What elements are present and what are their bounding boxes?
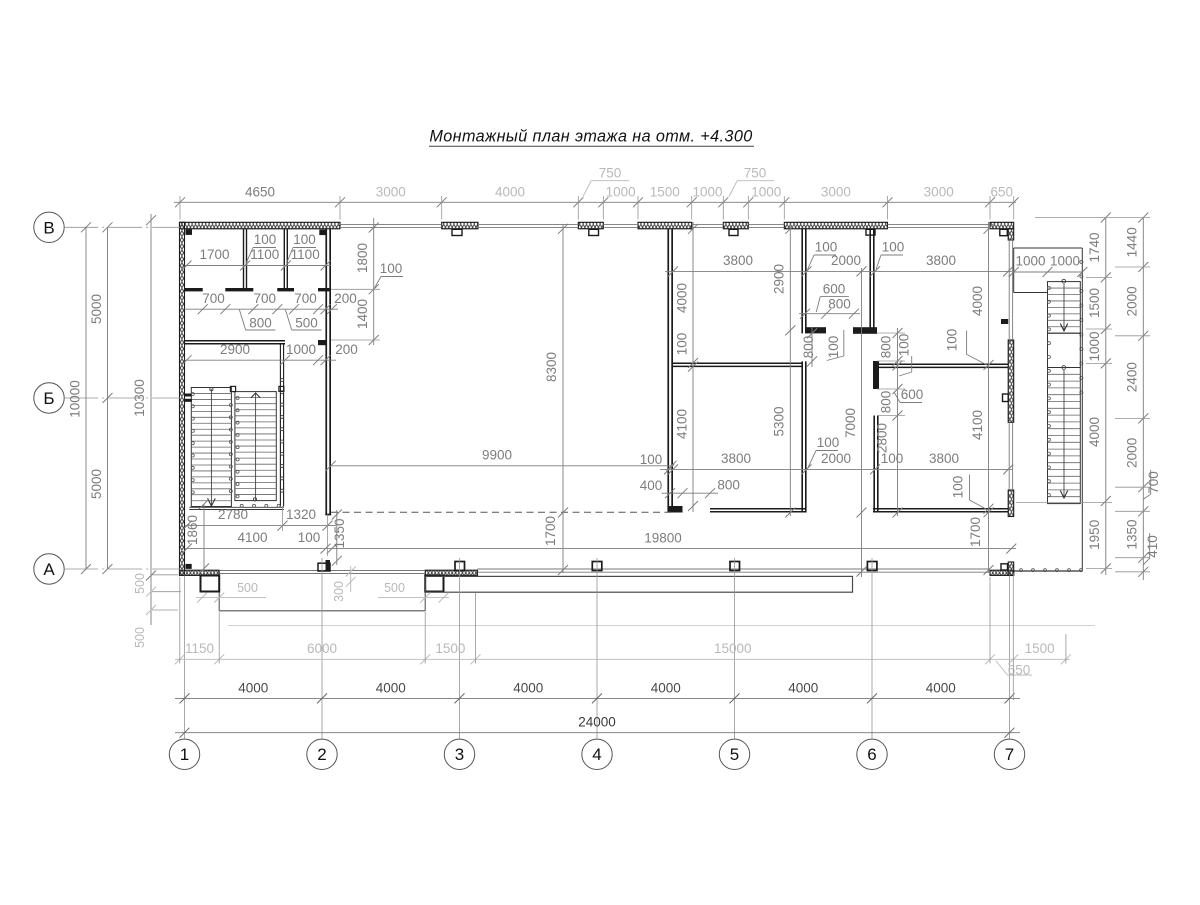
- svg-text:2000: 2000: [1125, 438, 1140, 468]
- svg-text:500: 500: [237, 581, 258, 595]
- svg-text:2: 2: [317, 745, 326, 764]
- svg-text:500: 500: [133, 627, 147, 648]
- svg-text:1700: 1700: [968, 517, 983, 547]
- svg-text:10000: 10000: [68, 380, 83, 418]
- svg-text:15000: 15000: [714, 641, 752, 656]
- svg-text:19800: 19800: [644, 531, 682, 546]
- svg-text:500: 500: [133, 573, 147, 594]
- svg-text:800: 800: [828, 297, 851, 312]
- svg-text:700: 700: [1146, 471, 1161, 494]
- svg-text:200: 200: [334, 291, 357, 306]
- svg-text:100: 100: [945, 329, 960, 352]
- svg-text:1500: 1500: [1087, 288, 1102, 318]
- svg-text:4000: 4000: [376, 681, 406, 696]
- svg-text:4000: 4000: [788, 681, 818, 696]
- svg-text:7: 7: [1005, 745, 1014, 764]
- svg-text:3000: 3000: [924, 184, 954, 199]
- svg-text:3800: 3800: [929, 451, 959, 466]
- svg-text:Б: Б: [43, 389, 54, 408]
- svg-text:800: 800: [249, 315, 272, 330]
- svg-text:5000: 5000: [89, 469, 104, 499]
- svg-text:1740: 1740: [1087, 232, 1102, 262]
- svg-text:300: 300: [332, 581, 346, 602]
- svg-text:1000: 1000: [606, 184, 636, 199]
- svg-text:5300: 5300: [772, 406, 787, 436]
- svg-text:5: 5: [730, 745, 739, 764]
- svg-text:750: 750: [599, 166, 622, 181]
- svg-text:1500: 1500: [435, 641, 465, 656]
- svg-text:3: 3: [455, 745, 464, 764]
- svg-text:4100: 4100: [237, 530, 267, 545]
- svg-text:4000: 4000: [238, 681, 268, 696]
- svg-text:1000: 1000: [1050, 254, 1080, 269]
- svg-text:1800: 1800: [355, 243, 370, 273]
- svg-text:4000: 4000: [513, 681, 543, 696]
- svg-text:500: 500: [295, 315, 318, 330]
- svg-text:1320: 1320: [286, 507, 316, 522]
- svg-text:500: 500: [384, 581, 405, 595]
- svg-text:1440: 1440: [1125, 227, 1140, 257]
- svg-text:1000: 1000: [751, 184, 781, 199]
- svg-text:2780: 2780: [218, 507, 248, 522]
- svg-text:2000: 2000: [1125, 286, 1140, 316]
- svg-text:1000: 1000: [1087, 331, 1102, 361]
- svg-text:3800: 3800: [721, 451, 751, 466]
- svg-text:100: 100: [897, 334, 912, 357]
- svg-text:100: 100: [380, 261, 403, 276]
- svg-text:24000: 24000: [578, 714, 616, 729]
- svg-text:800: 800: [801, 336, 816, 359]
- svg-text:9900: 9900: [482, 447, 512, 462]
- svg-text:4100: 4100: [970, 410, 985, 440]
- svg-text:2000: 2000: [821, 451, 851, 466]
- svg-text:410: 410: [1145, 535, 1160, 558]
- svg-text:4000: 4000: [970, 286, 985, 316]
- svg-text:2900: 2900: [220, 342, 250, 357]
- svg-text:1100: 1100: [291, 247, 320, 262]
- svg-text:1950: 1950: [1087, 520, 1102, 550]
- svg-text:1700: 1700: [543, 516, 558, 546]
- svg-text:1000: 1000: [286, 342, 316, 357]
- svg-text:100: 100: [675, 333, 690, 356]
- svg-text:100: 100: [254, 232, 277, 247]
- svg-text:100: 100: [951, 476, 966, 499]
- svg-text:2400: 2400: [1125, 362, 1140, 392]
- svg-text:7000: 7000: [843, 408, 858, 438]
- svg-text:4: 4: [592, 745, 601, 764]
- svg-text:Монтажный план этажа на отм. +: Монтажный план этажа на отм. +4.300: [429, 128, 752, 146]
- svg-text:1000: 1000: [1015, 254, 1045, 269]
- svg-text:100: 100: [640, 452, 663, 467]
- svg-text:3000: 3000: [821, 184, 851, 199]
- svg-text:1: 1: [180, 745, 189, 764]
- svg-text:100: 100: [293, 232, 316, 247]
- svg-text:6: 6: [867, 745, 876, 764]
- svg-text:100: 100: [882, 240, 905, 255]
- svg-text:800: 800: [879, 336, 894, 359]
- svg-text:4000: 4000: [926, 681, 956, 696]
- svg-text:2900: 2900: [772, 264, 787, 294]
- svg-text:700: 700: [202, 291, 225, 306]
- svg-text:4650: 4650: [245, 184, 275, 199]
- svg-text:100: 100: [815, 240, 838, 255]
- svg-text:4000: 4000: [495, 184, 525, 199]
- svg-text:800: 800: [879, 391, 894, 414]
- svg-text:10300: 10300: [132, 379, 147, 417]
- svg-text:1150: 1150: [185, 641, 214, 656]
- svg-text:1500: 1500: [650, 184, 680, 199]
- svg-text:1700: 1700: [199, 247, 229, 262]
- svg-text:2800: 2800: [875, 423, 890, 453]
- svg-text:А: А: [43, 560, 55, 579]
- svg-text:1500: 1500: [1025, 641, 1055, 656]
- svg-text:1860: 1860: [185, 515, 200, 545]
- svg-text:1400: 1400: [355, 299, 370, 329]
- svg-text:3000: 3000: [376, 184, 406, 199]
- svg-text:В: В: [43, 218, 54, 237]
- svg-text:100: 100: [298, 530, 321, 545]
- svg-text:1350: 1350: [1125, 519, 1140, 549]
- svg-text:4100: 4100: [675, 409, 690, 439]
- svg-text:650: 650: [991, 184, 1014, 199]
- svg-text:600: 600: [823, 282, 846, 297]
- svg-text:700: 700: [294, 291, 317, 306]
- svg-text:3800: 3800: [926, 253, 956, 268]
- svg-text:400: 400: [640, 478, 663, 493]
- svg-text:100: 100: [817, 435, 840, 450]
- svg-text:800: 800: [717, 478, 740, 493]
- svg-text:8300: 8300: [544, 352, 559, 382]
- svg-text:3800: 3800: [723, 253, 753, 268]
- svg-text:100: 100: [826, 336, 841, 359]
- svg-text:4000: 4000: [651, 681, 681, 696]
- svg-text:1100: 1100: [250, 247, 279, 262]
- svg-text:4000: 4000: [1087, 417, 1102, 447]
- svg-text:5000: 5000: [89, 294, 104, 324]
- svg-text:200: 200: [335, 342, 358, 357]
- svg-text:750: 750: [744, 166, 767, 181]
- svg-text:1350: 1350: [332, 518, 347, 548]
- svg-text:6000: 6000: [307, 641, 337, 656]
- svg-text:700: 700: [254, 291, 277, 306]
- svg-text:4000: 4000: [675, 283, 690, 313]
- svg-text:1000: 1000: [692, 184, 722, 199]
